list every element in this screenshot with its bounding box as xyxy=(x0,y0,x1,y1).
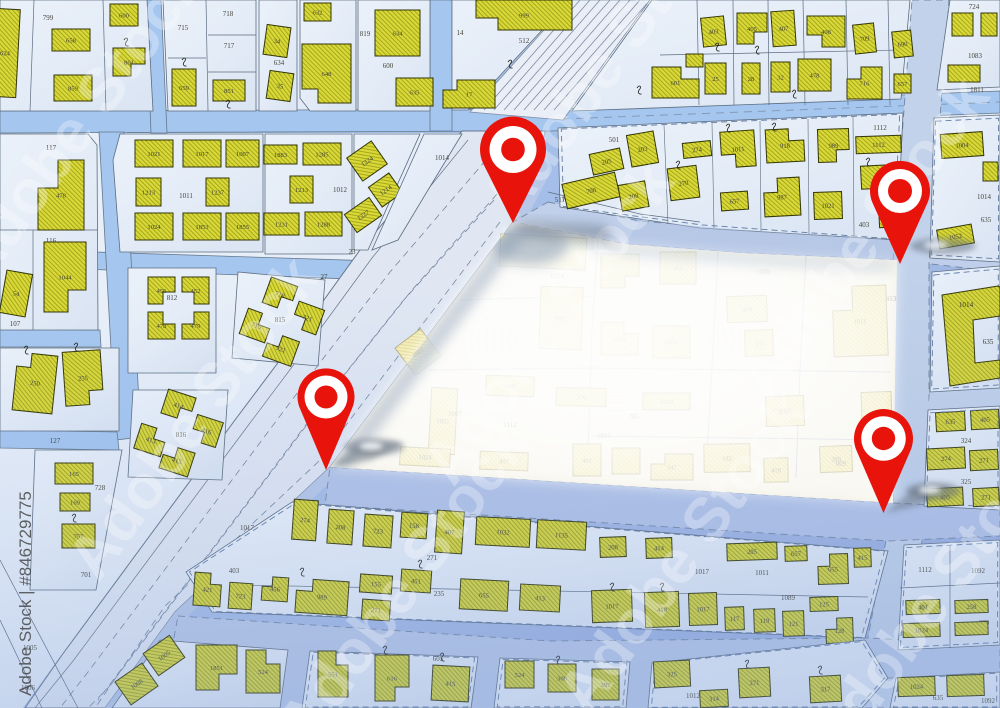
svg-text:Adobe Stock | #846729775: Adobe Stock | #846729775 xyxy=(16,491,35,696)
